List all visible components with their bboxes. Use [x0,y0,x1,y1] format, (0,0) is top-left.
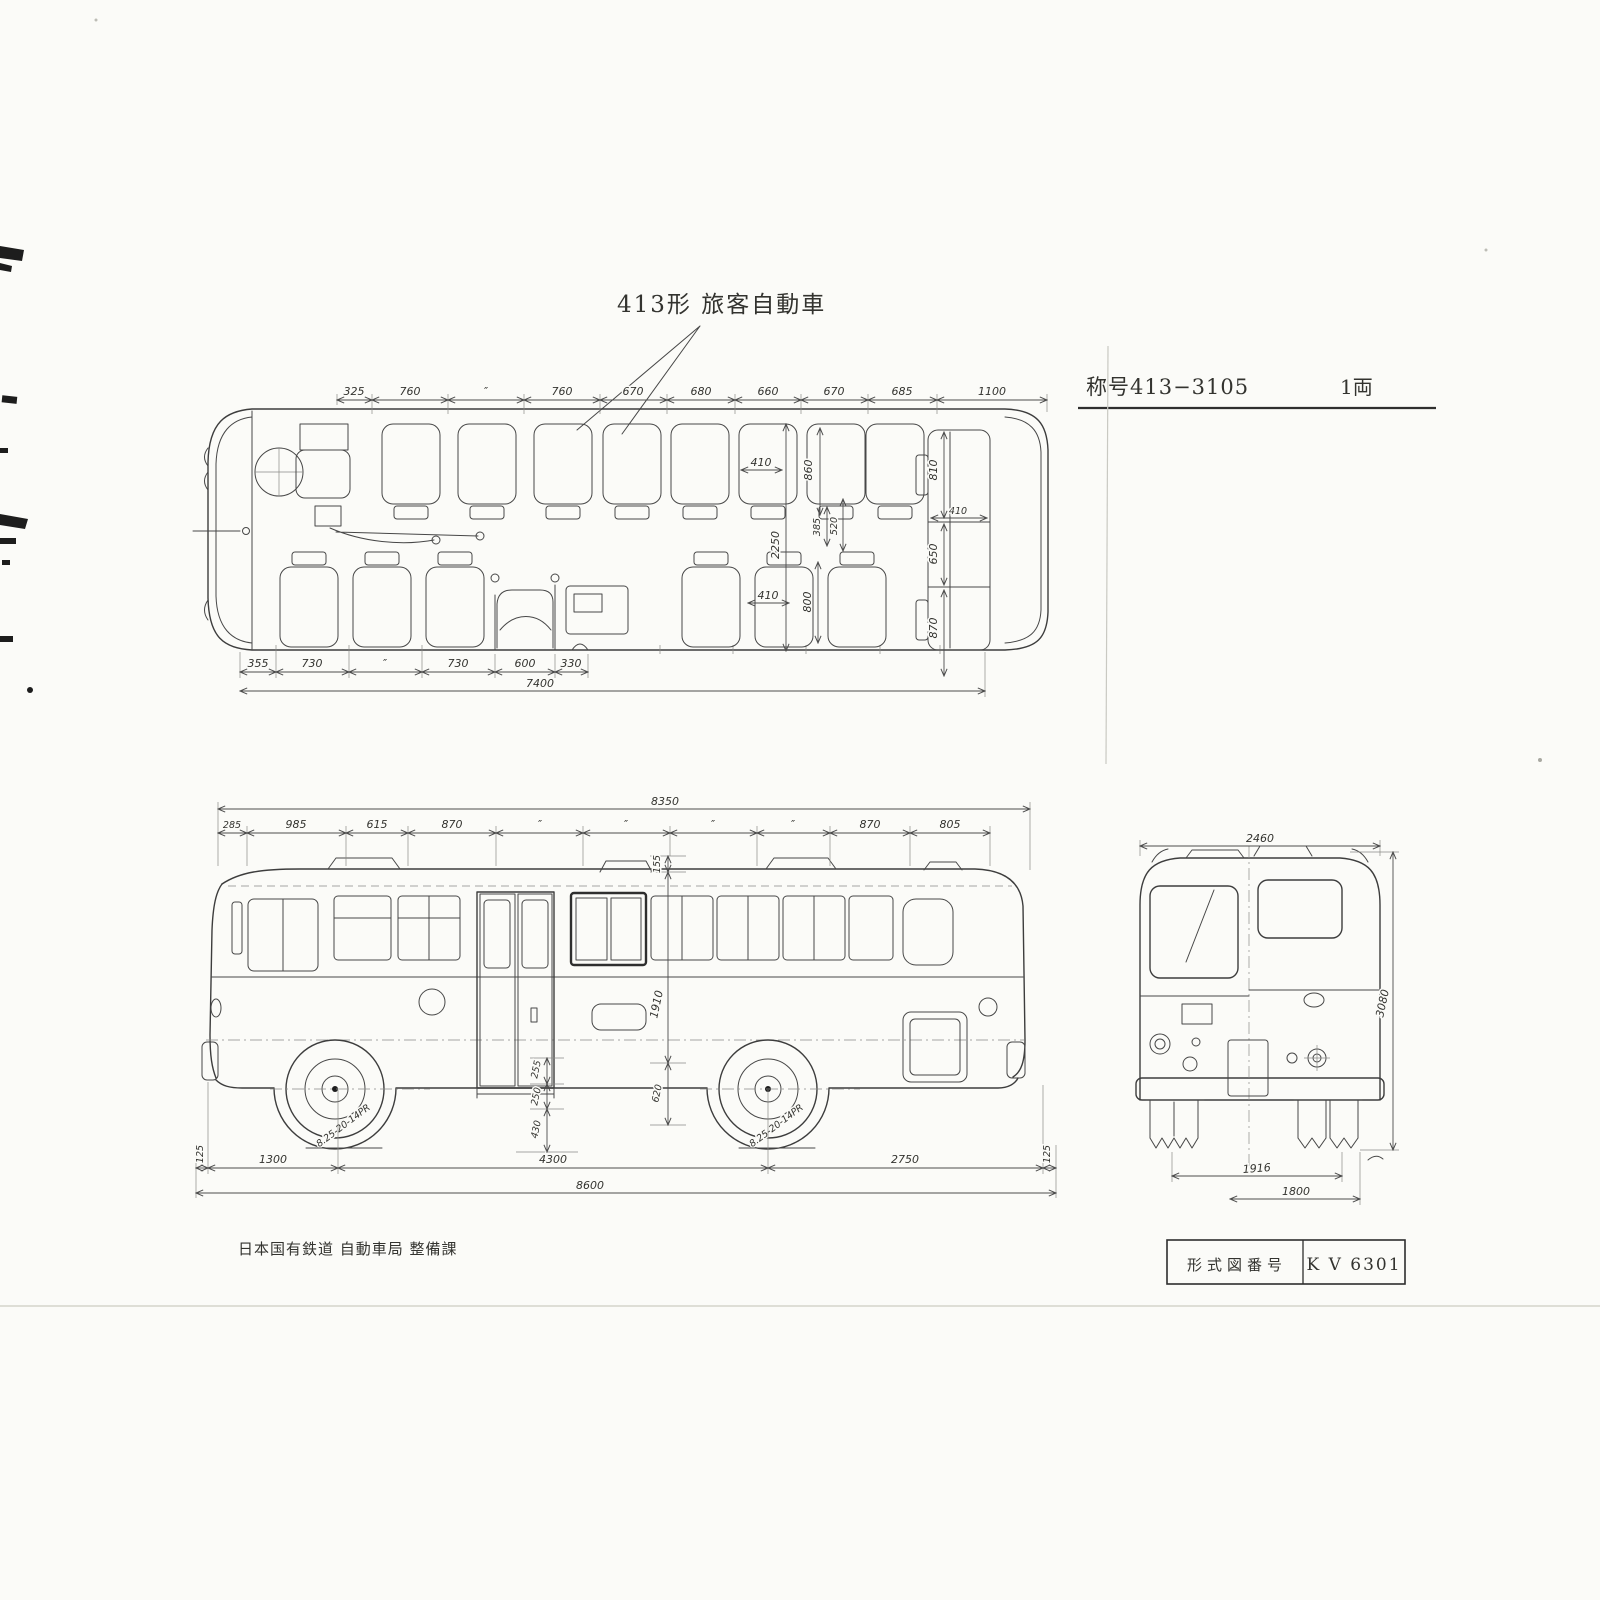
plan-bus-outline [193,405,1048,654]
dim-side-vent: 155 [652,855,663,873]
dim-plan-top-8: 685 [892,385,913,398]
dim-plan-bot-0: 355 [248,657,269,670]
wiper [1186,890,1214,962]
front-glazing [1150,880,1342,978]
dim-plan-interior-width: 2250 [769,531,782,559]
dim-step-mid: 250 [529,1086,544,1106]
dim-plan-top-4: 670 [623,385,644,398]
dim-side-skirt: 620 [650,1083,665,1103]
blueprint-canvas: 413形 旅客自動車 称号413−3105 1両 [0,0,1600,1600]
dim-side-overall-top: 8350 [651,795,679,808]
front-wheels [1146,1100,1362,1148]
dim-front-width: 2460 [1246,832,1274,845]
plan-dim-chain-top: 325 760 ″ 760 670 680 660 670 685 1100 [337,385,1047,412]
dim-plan-bench-lower: 870 [927,618,940,639]
dim-plan-bench-upper: 810 [927,460,940,481]
front-dimensions: 2460 3080 1916 1800 [1140,832,1399,1205]
dim-plan-bot-1: 730 [302,657,323,670]
pen-squiggle [1368,1156,1383,1160]
dim-plan-seat-width-rear: 410 [758,589,779,602]
dim-plan-top-2: ″ [484,385,489,398]
side-dim-vertical: 155 1910 620 [647,855,686,1125]
front-bumper-bar [1136,1078,1384,1100]
title-block: 形式図番号 K V 6301 [1167,1240,1405,1284]
scanned-drawing-page: 413形 旅客自動車 称号413−3105 1両 [0,0,1600,1600]
fuel-filler [419,989,445,1015]
dim-plan-top-9: 1100 [978,385,1006,398]
dim-front-track: 1916 [1242,1161,1271,1176]
quantity-text: 1両 [1340,375,1373,399]
dim-plan-top-5: 680 [691,385,712,398]
dim-rear-track: 1800 [1282,1185,1310,1198]
dim-side-top-1: 985 [286,818,307,831]
plan-seats-lower-row [280,552,886,647]
dim-side-rear-overhang: 2750 [891,1153,919,1166]
dim-plan-seat-cushion: 800 [801,592,814,613]
dim-side-top-3: 870 [442,818,463,831]
dim-plan-top-3: 760 [552,385,573,398]
dim-plan-overall: 7400 [526,677,554,690]
dim-plan-top-1: 760 [400,385,421,398]
dim-side-rear-margin: 125 [1042,1145,1053,1163]
driver-seat [296,450,350,498]
dim-plan-top-0: 325 [344,385,365,398]
dim-plan-bot-2: ″ [383,657,388,670]
dim-step-top: 255 [529,1059,544,1079]
dim-step-bottom: 430 [529,1119,544,1139]
title-block-label: 形式図番号 [1187,1256,1287,1274]
rear-window [1258,880,1342,938]
front-body-outline [1136,846,1384,1168]
side-view: 8.25-20-14PR 8.25-20-14PR 8350 285 985 6… [195,795,1056,1198]
side-windows [232,893,953,971]
plan-entrance-door [491,574,628,650]
side-dim-chain-top: 8350 285 985 615 870 ″ ″ ″ ″ 870 805 [218,795,1030,870]
side-wheels: 8.25-20-14PR 8.25-20-14PR [270,1040,860,1150]
dim-plan-bot-5: 330 [561,657,582,670]
title-block-value: K V 6301 [1306,1255,1401,1275]
dim-side-front-margin: 125 [195,1145,206,1163]
front-tire-tread [1150,1138,1198,1148]
dim-side-wheelbase: 4300 [539,1153,567,1166]
window-bold-frame [571,893,646,965]
title-leader-lines [577,326,700,434]
plan-view: 410 860 2250 385 520 410 800 810 410 650… [193,385,1048,697]
dim-side-overall-length: 8600 [576,1179,604,1192]
windshield [1150,886,1238,978]
engine-hatch [903,1012,967,1082]
dim-plan-top-6: 660 [758,385,779,398]
plan-driver-area [255,424,484,544]
dim-plan-gap-a: 385 [812,518,823,536]
dim-side-top-9: 805 [940,818,961,831]
roof-ventilators [328,858,962,872]
rear-bumper [1007,1042,1025,1078]
dim-plan-gap-b: 520 [829,517,840,535]
dim-side-top-4: ″ [538,818,543,831]
rear-quarter-window [903,899,953,965]
headlight-side [211,999,221,1017]
dim-plan-bot-3: 730 [448,657,469,670]
gear-lever [330,528,478,543]
side-dim-step: 255 250 430 [516,1058,578,1152]
dim-side-top-6: ″ [711,818,716,831]
dim-plan-seat-width-front: 410 [751,456,772,469]
front-fittings [1150,993,1330,1096]
dim-front-height: 3080 [1373,988,1392,1018]
front-view: 2460 3080 1916 1800 [1136,832,1399,1205]
plan-dim-chain-bottom: 355 730 ″ 730 600 330 7400 [240,652,985,697]
dim-plan-top-7: 670 [824,385,845,398]
dim-side-top-5: ″ [624,818,629,831]
license-plate [1182,1004,1212,1024]
dim-plan-bench-center: 650 [927,544,940,565]
drawing-title: 413形 旅客自動車 [617,292,826,318]
dim-side-height: 1910 [647,989,666,1019]
dim-plan-bot-4: 600 [515,657,536,670]
drawing-footer: 日本国有鉄道 自動車局 整備課 形式図番号 K V 6301 [238,1240,1405,1284]
dim-side-top-2: 615 [367,818,388,831]
door-handle [531,1008,537,1022]
drawing-header: 413形 旅客自動車 称号413−3105 1両 [577,292,1436,434]
dim-side-top-8: 870 [860,818,881,831]
headlight [1150,1034,1170,1054]
dim-plan-seat-pitch: 860 [802,460,815,481]
rear-tire-tread [1298,1138,1358,1148]
dim-side-front-axle: 1300 [259,1153,287,1166]
dim-side-top-7: ″ [791,818,796,831]
access-door [1228,1040,1268,1096]
side-lower-details [211,989,997,1082]
dim-plan-bench-depth: 410 [949,506,967,517]
issuing-organization: 日本国有鉄道 自動車局 整備課 [238,1240,458,1258]
dim-side-top-0: 285 [223,820,241,831]
designation-text: 称号413−3105 [1086,375,1249,399]
